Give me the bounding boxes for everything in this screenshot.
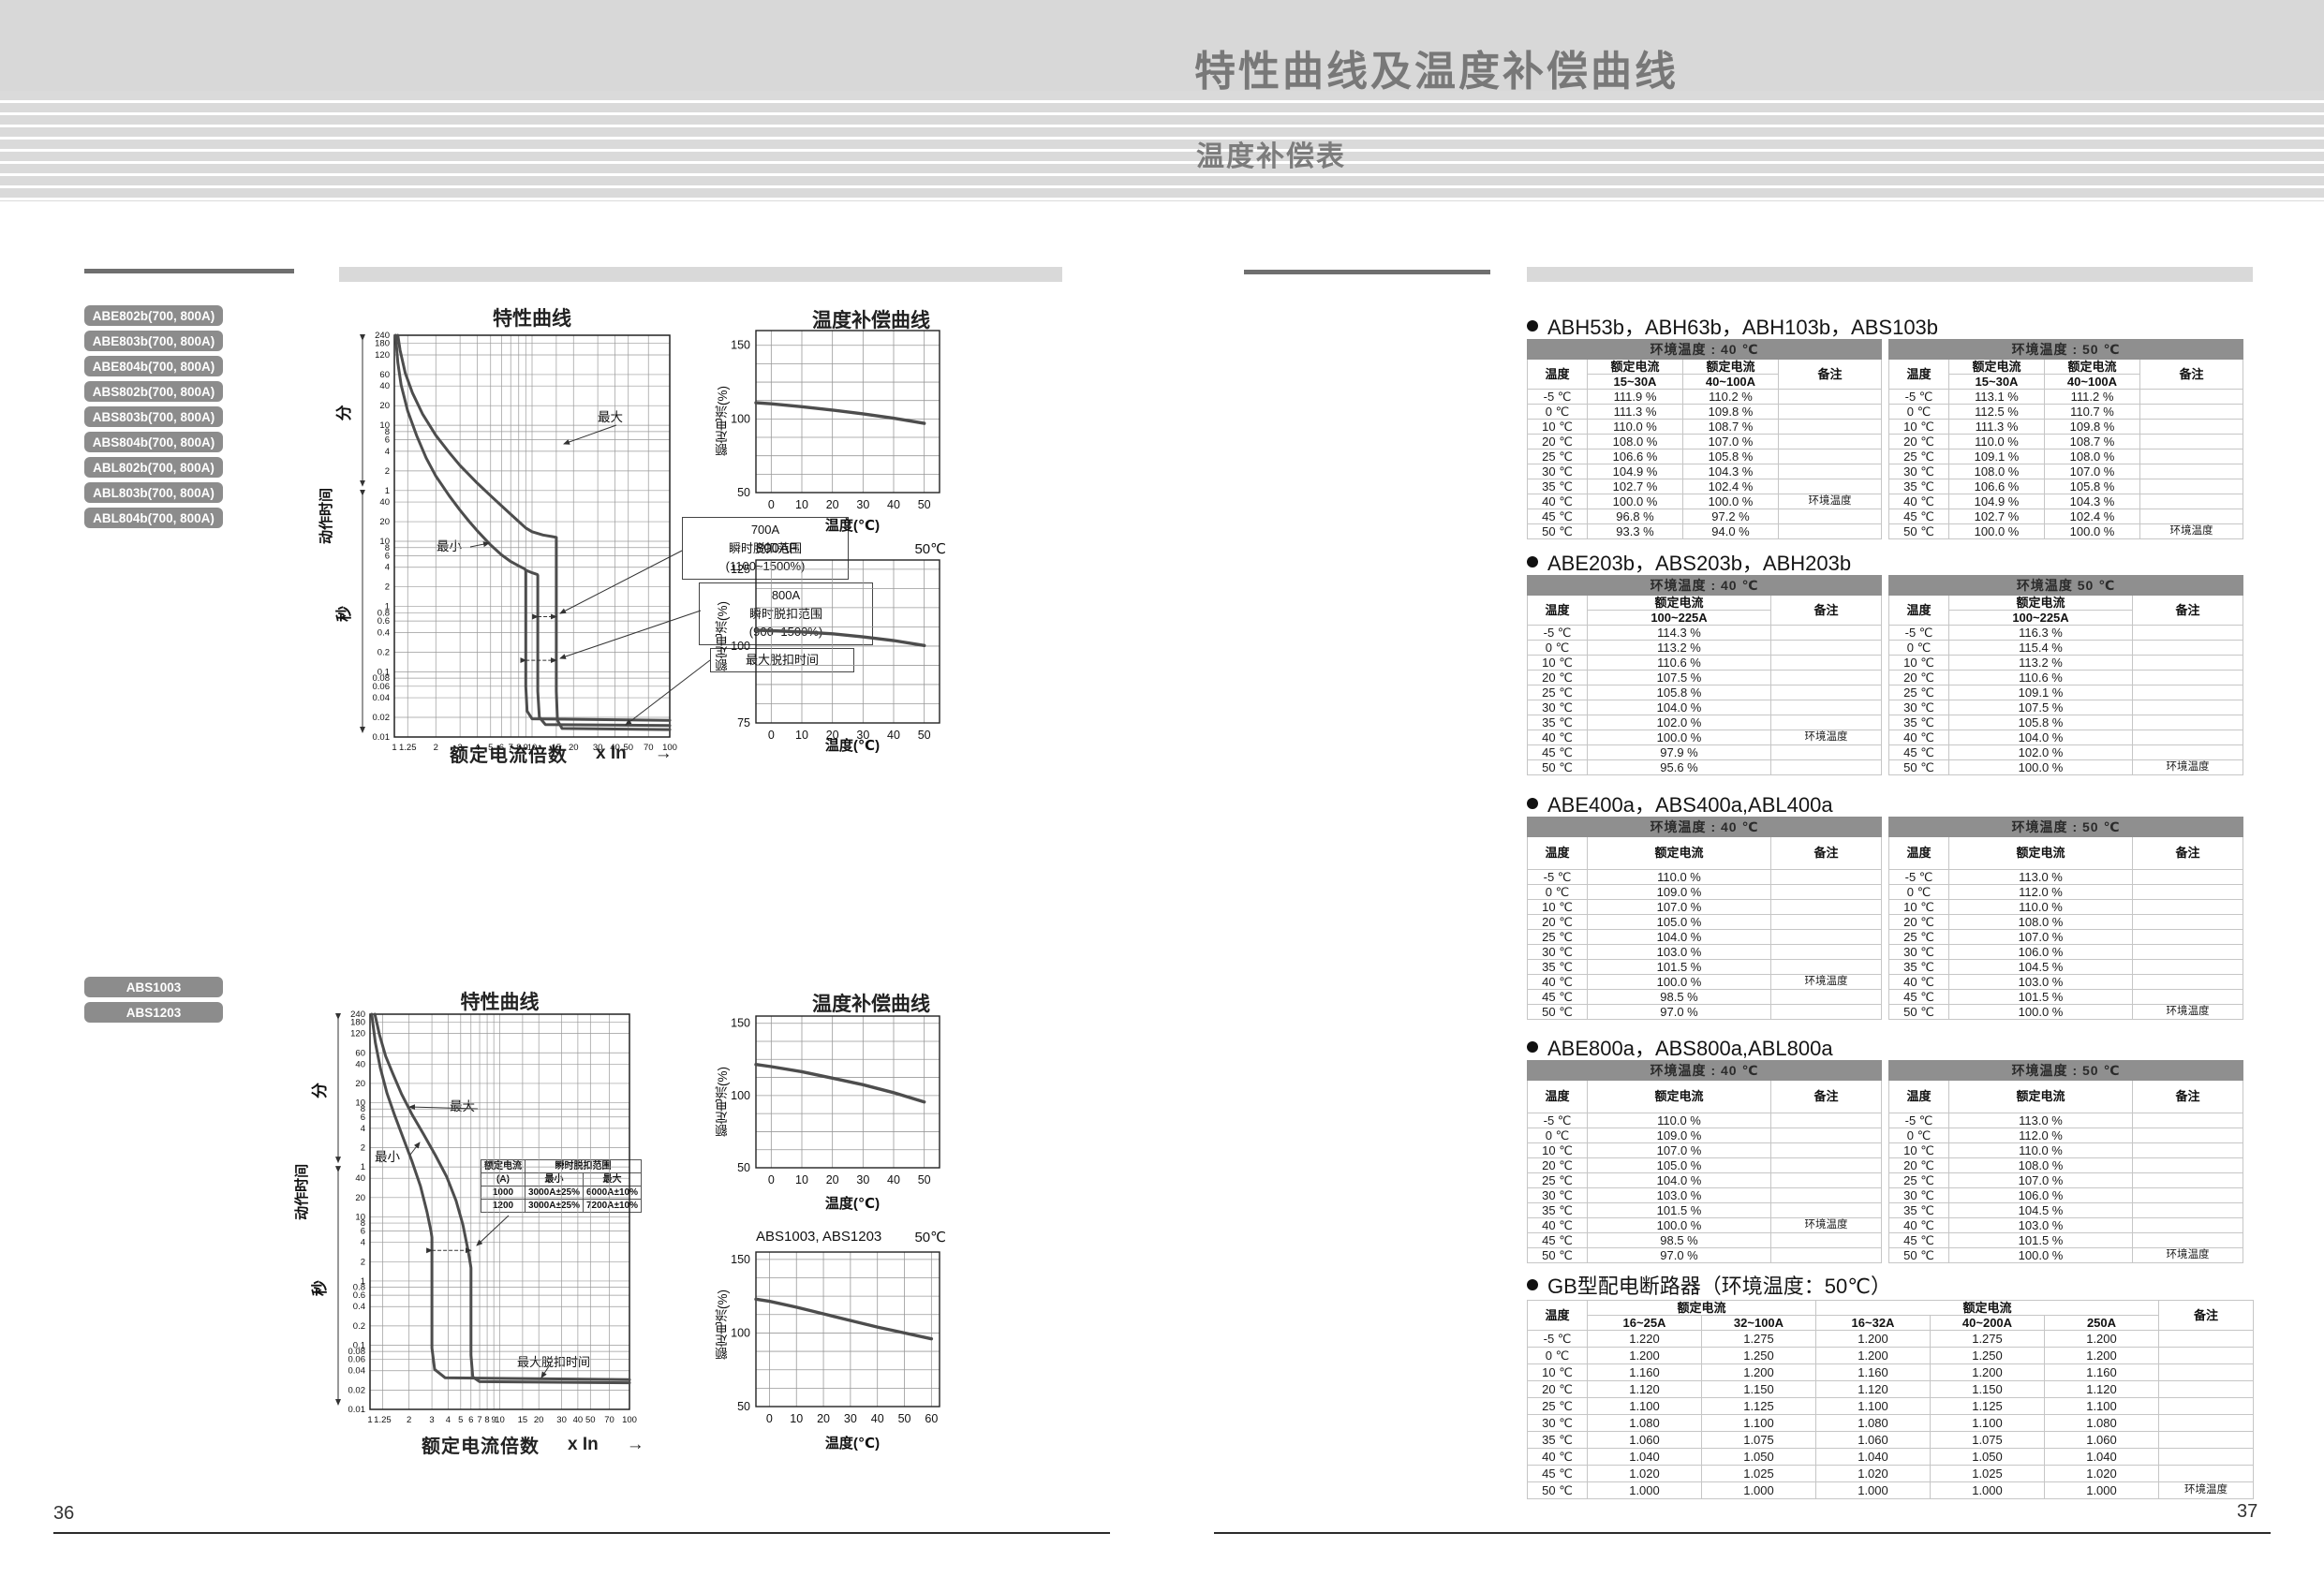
comp-table: 环境温度 : 40 ℃温度额定电流额定电流备注15~30A40~100A-5 ℃… — [1527, 339, 2243, 539]
svg-text:100: 100 — [731, 1089, 750, 1102]
svg-text:50: 50 — [918, 729, 931, 742]
svg-text:40: 40 — [610, 743, 620, 753]
svg-text:75: 75 — [737, 716, 750, 730]
products-label: ABH53b，ABH63b，ABH103b，ABS103b — [1547, 311, 1938, 341]
svg-text:100: 100 — [662, 743, 677, 753]
svg-text:6: 6 — [361, 1113, 365, 1123]
svg-text:10: 10 — [795, 729, 808, 742]
temp-comp-chart-800af: 800AF 50℃ 额定电流(%) 温度(℃) 7510012501020304… — [712, 538, 993, 759]
comp-table-half: 环境温度 : 40 ℃温度额定电流备注-5 ℃110.0 %0 ℃109.0 %… — [1527, 817, 1882, 1020]
svg-text:4: 4 — [475, 743, 480, 753]
bullet-icon — [1527, 1041, 1538, 1053]
svg-text:0: 0 — [768, 498, 775, 511]
svg-text:10: 10 — [790, 1412, 803, 1425]
svg-text:2: 2 — [361, 1142, 365, 1153]
svg-text:120: 120 — [375, 350, 390, 361]
svg-text:分: 分 — [335, 405, 353, 420]
svg-text:分: 分 — [311, 1083, 329, 1098]
svg-text:1: 1 — [367, 1415, 372, 1425]
svg-text:30: 30 — [856, 1173, 869, 1186]
svg-text:动作时间: 动作时间 — [293, 1164, 310, 1220]
svg-text:5: 5 — [458, 1415, 463, 1425]
svg-text:10: 10 — [795, 498, 808, 511]
svg-text:0.04: 0.04 — [373, 693, 391, 703]
svg-text:动作时间: 动作时间 — [318, 488, 334, 544]
svg-text:30: 30 — [556, 1415, 567, 1425]
products-heading: GB型配电断路器（环境温度：50℃） — [1527, 1270, 1891, 1300]
product-badge: ABL804b(700, 800A) — [84, 508, 223, 528]
svg-text:1.25: 1.25 — [374, 1415, 392, 1425]
svg-text:8: 8 — [484, 1415, 489, 1425]
temp-comp-chart-3: 额定电流(%) 温度(℃) 5010015001020304050 — [712, 1004, 993, 1219]
svg-text:20: 20 — [355, 1193, 365, 1203]
product-badge: ABS804b(700, 800A) — [84, 432, 223, 452]
svg-text:20: 20 — [379, 401, 390, 411]
svg-text:30: 30 — [844, 1412, 857, 1425]
svg-text:2: 2 — [407, 1415, 411, 1425]
svg-text:70: 70 — [644, 743, 654, 753]
page-number-right: 37 — [2237, 1501, 2257, 1523]
svg-text:0: 0 — [766, 1412, 773, 1425]
svg-text:6: 6 — [468, 1415, 473, 1425]
comp-table: 环境温度 : 40 ℃温度额定电流备注100~225A-5 ℃114.3 %0 … — [1527, 575, 2243, 775]
page-title: 特性曲线及温度补偿曲线 — [1194, 37, 1679, 97]
section-bar-left — [339, 267, 1062, 282]
section-rule-right — [1244, 270, 1490, 274]
svg-text:0.01: 0.01 — [348, 1405, 366, 1415]
svg-text:10: 10 — [495, 1415, 505, 1425]
product-badge: ABL803b(700, 800A) — [84, 482, 223, 503]
products-label: GB型配电断路器（环境温度：50℃） — [1547, 1270, 1891, 1300]
svg-text:40: 40 — [355, 1059, 365, 1069]
products-heading: ABE800a，ABS800a,ABL800a — [1527, 1032, 1833, 1062]
chart-canvas: 501001500102030405060 — [712, 1227, 993, 1456]
svg-text:10: 10 — [527, 743, 538, 753]
comp-table: 环境温度 : 40 ℃温度额定电流备注-5 ℃110.0 %0 ℃109.0 %… — [1527, 1060, 2243, 1263]
footer-rule-left — [53, 1532, 1110, 1534]
footer-rule-right — [1214, 1532, 2271, 1534]
product-badge: ABE802b(700, 800A) — [84, 305, 223, 326]
svg-text:15: 15 — [518, 1415, 528, 1425]
products-heading: ABH53b，ABH63b，ABH103b，ABS103b — [1527, 311, 1938, 341]
svg-text:1: 1 — [392, 743, 396, 753]
product-badge: ABE803b(700, 800A) — [84, 331, 223, 351]
svg-text:180: 180 — [350, 1018, 365, 1028]
products-label: ABE400a，ABS400a,ABL400a — [1547, 788, 1833, 818]
svg-text:7: 7 — [477, 1415, 481, 1425]
temp-comp-chart-1: 额定电流(%) 温度(℃) 5010015001020304050 — [712, 323, 993, 539]
page-number-left: 36 — [53, 1503, 74, 1525]
svg-text:40: 40 — [355, 1173, 365, 1184]
svg-text:70: 70 — [604, 1415, 614, 1425]
svg-text:6: 6 — [499, 743, 504, 753]
svg-text:4: 4 — [385, 563, 390, 573]
svg-text:6: 6 — [361, 1227, 365, 1237]
product-badge: ABS802b(700, 800A) — [84, 381, 223, 402]
svg-text:2: 2 — [385, 466, 390, 477]
products-label: ABE800a，ABS800a,ABL800a — [1547, 1032, 1833, 1062]
svg-text:120: 120 — [350, 1029, 365, 1039]
svg-text:50: 50 — [898, 1412, 911, 1425]
svg-text:100: 100 — [731, 412, 750, 425]
svg-text:20: 20 — [379, 517, 390, 527]
comp-table: 温度额定电流额定电流备注16~25A32~100A16~32A40~200A25… — [1527, 1300, 2254, 1499]
svg-text:60: 60 — [379, 370, 390, 380]
svg-text:60: 60 — [355, 1048, 365, 1058]
product-badge: ABS1203 — [84, 1002, 223, 1023]
bullet-icon — [1527, 556, 1538, 567]
comp-table-half: 环境温度 : 40 ℃温度额定电流备注100~225A-5 ℃114.3 %0 … — [1527, 575, 1882, 775]
product-badge: ABS803b(700, 800A) — [84, 406, 223, 427]
svg-text:20: 20 — [826, 729, 839, 742]
svg-text:30: 30 — [593, 743, 603, 753]
svg-text:0.02: 0.02 — [348, 1385, 366, 1395]
svg-text:0.2: 0.2 — [377, 647, 390, 657]
svg-text:20: 20 — [826, 498, 839, 511]
svg-text:125: 125 — [731, 563, 750, 576]
svg-text:1: 1 — [385, 486, 390, 496]
svg-text:1: 1 — [361, 1162, 365, 1172]
svg-text:0.02: 0.02 — [373, 713, 391, 723]
bullet-icon — [1527, 1279, 1538, 1290]
section-bar-right — [1527, 267, 2253, 282]
svg-text:4: 4 — [361, 1238, 365, 1248]
comp-table-gb: 温度额定电流额定电流备注16~25A32~100A16~32A40~200A25… — [1527, 1300, 2254, 1499]
svg-text:30: 30 — [856, 729, 869, 742]
svg-text:40: 40 — [887, 1173, 900, 1186]
svg-text:40: 40 — [379, 497, 390, 508]
svg-text:1.25: 1.25 — [399, 743, 417, 753]
svg-text:40: 40 — [887, 729, 900, 742]
svg-text:100: 100 — [731, 1326, 750, 1339]
comp-table-half: 环境温度 : 50 ℃温度额定电流备注-5 ℃113.0 %0 ℃112.0 %… — [1888, 1060, 2243, 1263]
svg-text:0.04: 0.04 — [348, 1366, 366, 1377]
svg-text:2: 2 — [361, 1257, 365, 1267]
svg-text:6: 6 — [385, 435, 390, 446]
header-band — [0, 0, 2324, 91]
svg-text:秒: 秒 — [310, 1280, 329, 1296]
product-badges-group1: ABE802b(700, 800A)ABE803b(700, 800A)ABE8… — [84, 305, 223, 528]
svg-text:50: 50 — [737, 486, 750, 499]
svg-text:3: 3 — [457, 743, 462, 753]
svg-text:40: 40 — [871, 1412, 884, 1425]
svg-text:40: 40 — [573, 1415, 584, 1425]
svg-text:150: 150 — [731, 339, 750, 352]
svg-text:180: 180 — [375, 339, 390, 349]
temp-comp-chart-abs1003: ABS1003, ABS1203 50℃ 额定电流(%) 温度(℃) 50100… — [712, 1227, 993, 1456]
svg-text:3: 3 — [429, 1415, 434, 1425]
svg-text:100: 100 — [731, 640, 750, 653]
svg-text:10: 10 — [795, 1173, 808, 1186]
svg-text:150: 150 — [731, 1253, 750, 1266]
svg-text:0.2: 0.2 — [353, 1321, 365, 1332]
chart-canvas: 5010015001020304050 — [712, 323, 993, 539]
svg-text:50: 50 — [737, 1400, 750, 1413]
svg-text:100: 100 — [622, 1415, 637, 1425]
svg-text:60: 60 — [925, 1412, 938, 1425]
svg-text:30: 30 — [856, 498, 869, 511]
svg-text:2: 2 — [434, 743, 438, 753]
svg-text:8: 8 — [516, 743, 521, 753]
svg-text:4: 4 — [446, 1415, 451, 1425]
comp-table: 环境温度 : 40 ℃温度额定电流备注-5 ℃110.0 %0 ℃109.0 %… — [1527, 817, 2243, 1020]
comp-table-half: 环境温度 : 50 ℃温度额定电流备注-5 ℃113.0 %0 ℃112.0 %… — [1888, 817, 2243, 1020]
comp-table-half: 环境温度 50 ℃温度额定电流备注100~225A-5 ℃116.3 %0 ℃1… — [1888, 575, 2243, 775]
svg-text:150: 150 — [731, 1017, 750, 1030]
svg-text:15: 15 — [552, 743, 562, 753]
svg-text:0.6: 0.6 — [353, 1290, 365, 1301]
svg-text:0.4: 0.4 — [353, 1302, 365, 1312]
product-badges-group2: ABS1003ABS1203 — [84, 977, 223, 1023]
section-rule-left — [84, 269, 294, 273]
page-subtitle: 温度补偿表 — [1196, 133, 1346, 174]
product-badge: ABS1003 — [84, 977, 223, 997]
svg-text:0.06: 0.06 — [373, 682, 391, 692]
svg-text:0.6: 0.6 — [377, 616, 390, 626]
product-badge: ABL802b(700, 800A) — [84, 457, 223, 478]
svg-text:50: 50 — [737, 1161, 750, 1174]
comp-table-half: 环境温度 : 40 ℃温度额定电流额定电流备注15~30A40~100A-5 ℃… — [1527, 339, 1882, 539]
svg-text:0.4: 0.4 — [377, 627, 390, 638]
svg-text:5: 5 — [488, 743, 493, 753]
products-label: ABE203b，ABS203b，ABH203b — [1547, 547, 1851, 577]
svg-text:4: 4 — [361, 1124, 365, 1134]
svg-text:0.01: 0.01 — [373, 732, 391, 743]
svg-text:秒: 秒 — [334, 606, 353, 622]
svg-text:2: 2 — [385, 582, 390, 593]
comp-table-half: 环境温度 : 50 ℃温度额定电流额定电流备注15~30A40~100A-5 ℃… — [1888, 339, 2243, 539]
svg-text:20: 20 — [534, 1415, 544, 1425]
products-heading: ABE203b，ABS203b，ABH203b — [1527, 547, 1851, 577]
svg-text:7: 7 — [509, 743, 513, 753]
svg-text:40: 40 — [887, 498, 900, 511]
products-heading: ABE400a，ABS400a,ABL400a — [1527, 788, 1833, 818]
svg-text:50: 50 — [623, 743, 633, 753]
svg-text:20: 20 — [355, 1079, 365, 1089]
svg-text:40: 40 — [379, 381, 390, 391]
bullet-icon — [1527, 798, 1538, 809]
svg-text:0.06: 0.06 — [348, 1355, 366, 1365]
header-stripes — [0, 91, 2324, 201]
svg-text:20: 20 — [817, 1412, 830, 1425]
svg-text:50: 50 — [585, 1415, 596, 1425]
svg-text:0: 0 — [768, 729, 775, 742]
svg-text:4: 4 — [385, 447, 390, 457]
chart-canvas: 5010015001020304050 — [712, 1004, 993, 1219]
bullet-icon — [1527, 320, 1538, 332]
svg-text:20: 20 — [569, 743, 579, 753]
svg-text:50: 50 — [918, 498, 931, 511]
product-badge: ABE804b(700, 800A) — [84, 356, 223, 376]
comp-table-half: 环境温度 : 40 ℃温度额定电流备注-5 ℃110.0 %0 ℃109.0 %… — [1527, 1060, 1882, 1263]
svg-text:20: 20 — [826, 1173, 839, 1186]
svg-text:0: 0 — [768, 1173, 775, 1186]
chart-canvas: 7510012501020304050 — [712, 538, 993, 759]
svg-text:50: 50 — [918, 1173, 931, 1186]
svg-text:6: 6 — [385, 551, 390, 561]
